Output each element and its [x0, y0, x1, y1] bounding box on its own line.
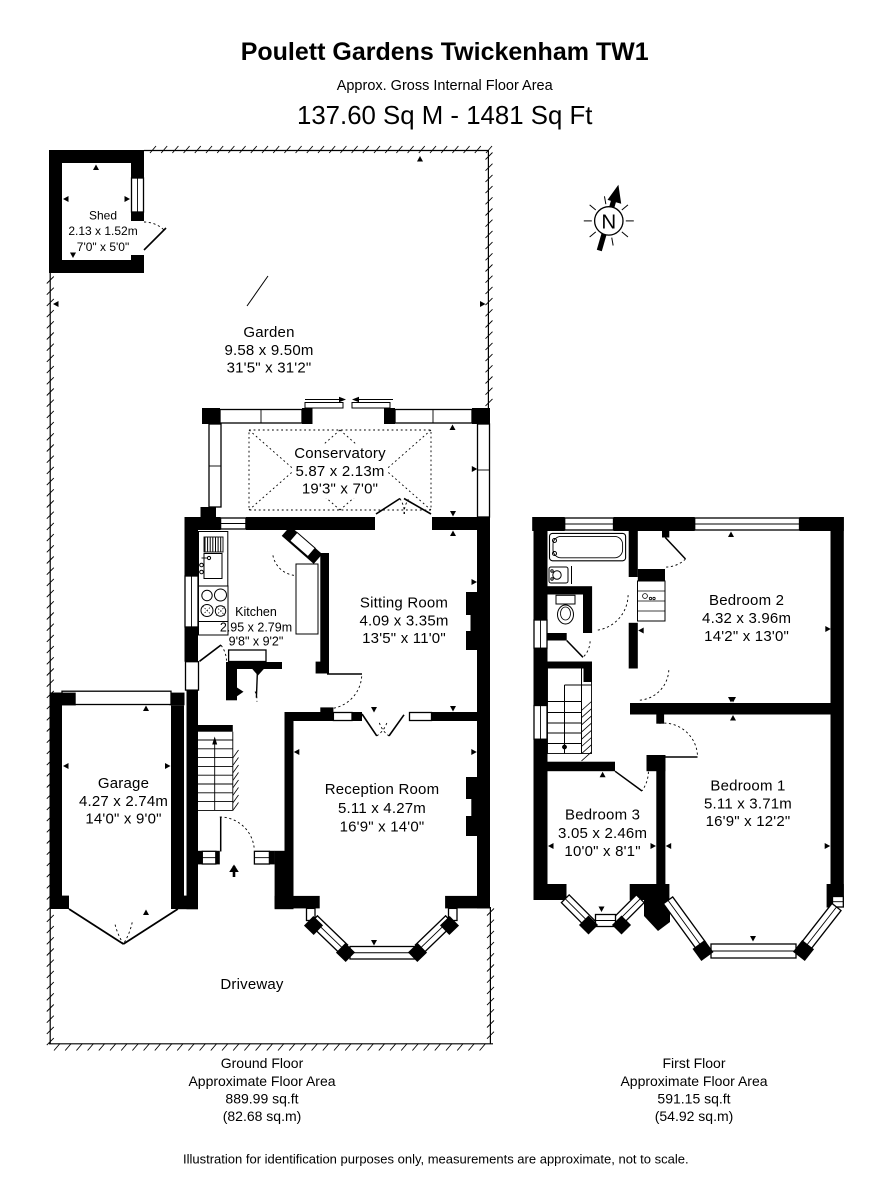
svg-text:Garage: Garage [98, 775, 149, 792]
svg-text:Driveway: Driveway [220, 976, 284, 993]
svg-text:14'0" x 9'0": 14'0" x 9'0" [85, 811, 161, 828]
svg-text:Kitchen: Kitchen [235, 605, 277, 619]
svg-text:31'5" x 31'2": 31'5" x 31'2" [227, 360, 312, 377]
svg-text:Sitting Room: Sitting Room [360, 595, 448, 612]
svg-text:10'0" x 8'1": 10'0" x 8'1" [564, 843, 640, 860]
svg-text:Conservatory: Conservatory [294, 445, 386, 462]
svg-text:Shed: Shed [89, 209, 117, 223]
svg-text:Garden: Garden [243, 324, 294, 341]
svg-text:N: N [601, 210, 616, 233]
svg-text:19'3" x 7'0": 19'3" x 7'0" [302, 481, 378, 498]
svg-text:591.15 sq.ft: 591.15 sq.ft [657, 1090, 730, 1106]
svg-text:9'8" x 9'2": 9'8" x 9'2" [229, 635, 284, 649]
svg-text:Ground Floor: Ground Floor [221, 1055, 304, 1071]
svg-text:Reception Room: Reception Room [325, 781, 440, 798]
svg-text:Poulett Gardens Twickenham TW1: Poulett Gardens Twickenham TW1 [241, 38, 649, 66]
svg-text:Bedroom 1: Bedroom 1 [710, 778, 785, 795]
svg-text:4.32 x 3.96m: 4.32 x 3.96m [702, 610, 791, 627]
svg-text:3.05 x 2.46m: 3.05 x 2.46m [558, 825, 647, 842]
svg-text:14'2" x 13'0": 14'2" x 13'0" [704, 628, 789, 645]
svg-text:16'9" x 14'0": 16'9" x 14'0" [340, 819, 425, 836]
svg-text:16'9" x 12'2": 16'9" x 12'2" [706, 813, 791, 830]
svg-text:4.27 x 2.74m: 4.27 x 2.74m [79, 793, 168, 810]
svg-text:889.99 sq.ft: 889.99 sq.ft [225, 1090, 298, 1106]
svg-text:2.95 x 2.79m: 2.95 x 2.79m [220, 621, 292, 635]
svg-text:7'0" x 5'0": 7'0" x 5'0" [77, 240, 129, 254]
svg-text:9.58 x 9.50m: 9.58 x 9.50m [224, 342, 313, 359]
svg-text:Approximate Floor Area: Approximate Floor Area [188, 1073, 335, 1089]
svg-text:(54.92 sq.m): (54.92 sq.m) [655, 1108, 734, 1124]
svg-text:First Floor: First Floor [663, 1055, 726, 1071]
svg-text:Illustration for identificatio: Illustration for identification purposes… [183, 1152, 689, 1167]
svg-text:Bedroom 2: Bedroom 2 [709, 592, 784, 609]
svg-text:5.87 x 2.13m: 5.87 x 2.13m [295, 463, 384, 480]
svg-text:13'5" x 11'0": 13'5" x 11'0" [362, 630, 446, 647]
svg-text:5.11 x 4.27m: 5.11 x 4.27m [338, 800, 426, 817]
svg-text:Bedroom 3: Bedroom 3 [565, 807, 640, 824]
svg-text:5.11 x 3.71m: 5.11 x 3.71m [704, 796, 792, 813]
svg-text:2.13 x 1.52m: 2.13 x 1.52m [68, 224, 137, 238]
svg-text:Approx. Gross Internal Floor A: Approx. Gross Internal Floor Area [337, 78, 554, 94]
svg-text:4.09 x 3.35m: 4.09 x 3.35m [359, 613, 448, 630]
svg-text:137.60 Sq M - 1481 Sq Ft: 137.60 Sq M - 1481 Sq Ft [297, 102, 592, 130]
svg-text:Approximate Floor Area: Approximate Floor Area [620, 1073, 767, 1089]
svg-text:(82.68 sq.m): (82.68 sq.m) [223, 1108, 302, 1124]
